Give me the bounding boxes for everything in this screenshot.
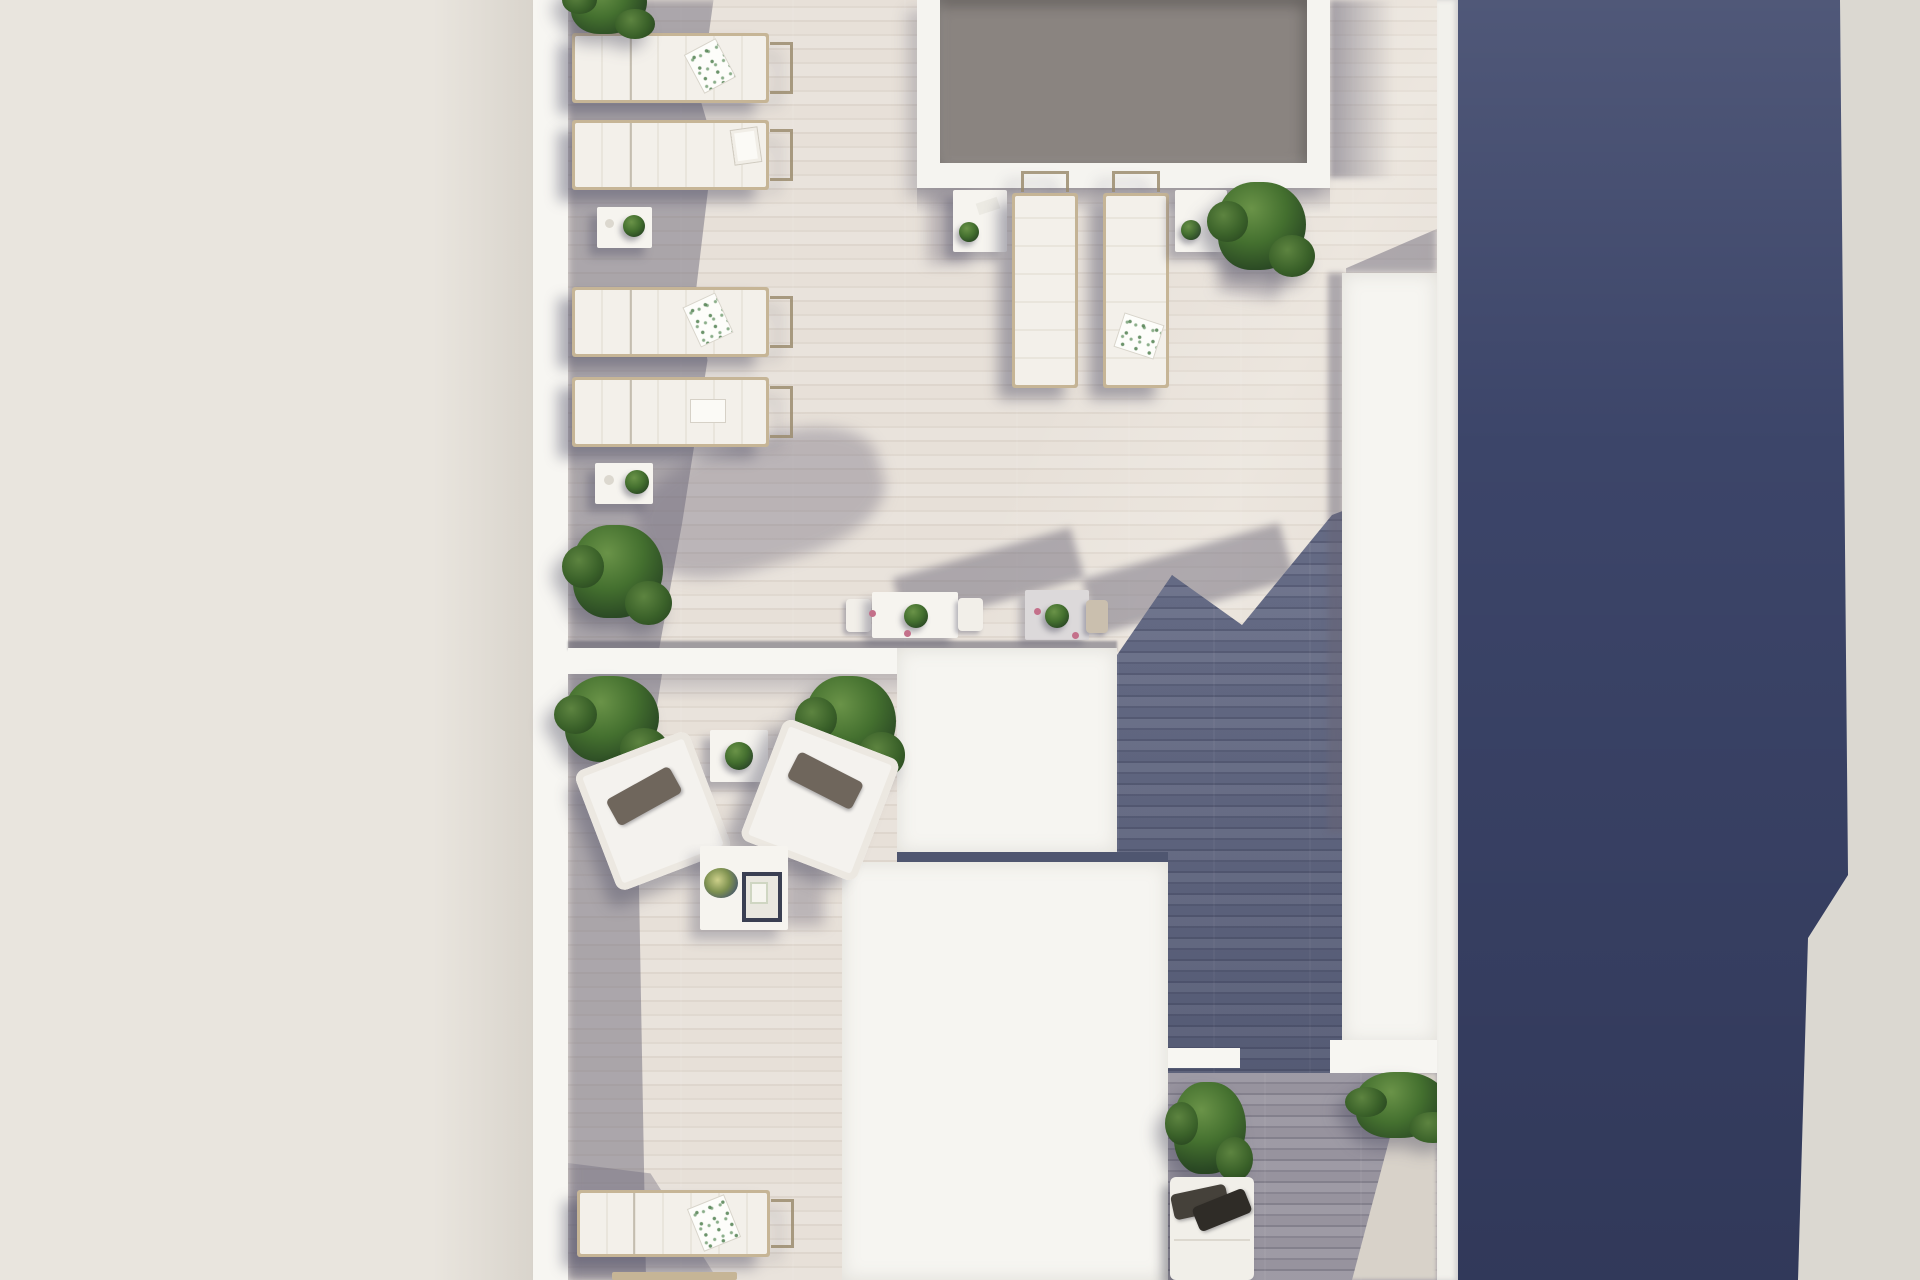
sun-lounger-1 <box>572 33 769 103</box>
dining-table-right <box>1025 590 1089 640</box>
side-table-2 <box>595 463 653 504</box>
bush-right-of-pool-loungers <box>1218 182 1306 270</box>
lounger-cushion <box>575 36 766 100</box>
lounger-backrest-seam <box>630 123 632 187</box>
potted-plant <box>1181 220 1201 240</box>
flower-accent <box>1034 608 1041 615</box>
flower-accent <box>869 610 876 617</box>
lounger-cushion <box>1015 196 1075 385</box>
roof-volume-lower <box>842 862 1168 1280</box>
potted-plant <box>623 215 645 237</box>
lounger-cushion <box>1106 196 1166 385</box>
daybed <box>1170 1177 1254 1280</box>
bush-bottom-right-left <box>1174 1082 1246 1174</box>
lounger-backrest-seam <box>630 290 632 354</box>
divider-wall <box>568 648 898 674</box>
gap-between-volumes <box>897 852 1168 862</box>
sun-lounger-4 <box>572 377 769 447</box>
wall-segment-bottom-right <box>1330 1040 1437 1073</box>
dining-table-left <box>872 592 958 638</box>
cup-on-table <box>605 219 614 228</box>
wall-ledge-bottom-left <box>1168 1048 1240 1068</box>
table-plant <box>1045 604 1069 628</box>
decor-tray <box>742 872 782 922</box>
pool-coping-shadow-right <box>1330 0 1394 178</box>
cup-on-table <box>604 475 614 485</box>
perimeter-wall-left <box>533 0 568 1280</box>
pool-water <box>940 0 1307 163</box>
rooftop-terrace-render <box>0 0 1920 1280</box>
flower-accent <box>1072 632 1079 639</box>
dining-chair <box>1086 600 1108 633</box>
pool-lounger-right <box>1103 193 1169 388</box>
potted-plant <box>625 470 649 494</box>
table-plant <box>904 604 928 628</box>
magazine-on-table <box>976 197 1001 215</box>
side-table-1 <box>597 207 652 248</box>
lounger-backrest-seam <box>630 380 632 444</box>
lounger-cushion <box>580 1193 767 1254</box>
tray-book <box>750 882 768 904</box>
roof-volume-upper <box>897 648 1117 853</box>
lumbar-pillow <box>605 766 683 827</box>
sun-lounger-3 <box>572 287 769 357</box>
flower-accent <box>904 630 911 637</box>
coffee-table <box>700 846 788 930</box>
decor-flowers <box>704 868 738 898</box>
potted-plant <box>725 742 753 770</box>
bush-bottom-right-wall <box>1356 1072 1448 1138</box>
lumbar-pillow <box>786 751 864 810</box>
lounger-cushion <box>575 290 766 354</box>
left-roof-edge-shading <box>433 0 533 1280</box>
potted-plant <box>959 222 979 242</box>
pool-side-table-left <box>953 190 1007 252</box>
pool-lounger-left <box>1012 193 1078 388</box>
dining-chair <box>958 598 983 631</box>
dining-chair <box>846 599 871 632</box>
sun-lounger-bottom <box>577 1190 770 1257</box>
roof-slab-right <box>1342 273 1437 1043</box>
daybed-blanket-seam <box>1174 1239 1250 1241</box>
sun-lounger-partial-bottom-edge <box>612 1272 737 1280</box>
lounger-backrest-seam <box>630 36 632 100</box>
lounge-side-table <box>710 730 768 782</box>
bush-mid-left <box>573 525 663 618</box>
bush-top-left <box>571 0 647 34</box>
lounger-cushion <box>575 380 766 444</box>
folded-towel <box>690 399 726 423</box>
book-on-lounger-2 <box>730 126 763 166</box>
perimeter-wall-right-strip <box>1437 0 1458 1280</box>
lounger-backrest-seam <box>633 1193 635 1254</box>
